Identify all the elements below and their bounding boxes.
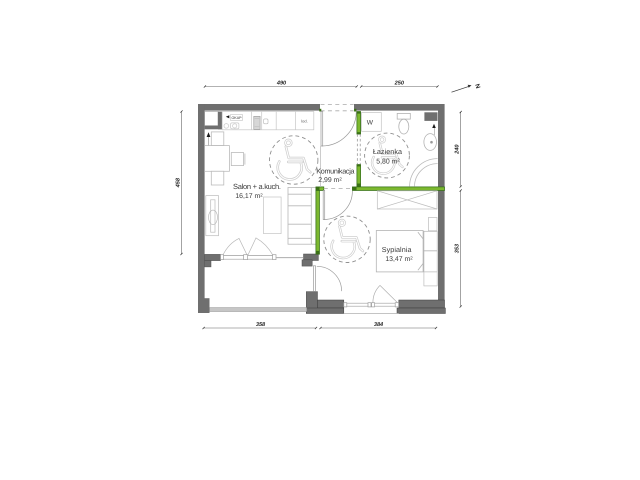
svg-text:384: 384	[374, 322, 384, 328]
svg-text:240: 240	[455, 144, 461, 155]
svg-text:Sypialnia: Sypialnia	[382, 245, 412, 254]
svg-text:Komunikacja: Komunikacja	[316, 166, 354, 175]
svg-text:250: 250	[394, 80, 405, 86]
svg-text:2,99 m2: 2,99 m2	[318, 176, 342, 184]
svg-text:490: 490	[276, 80, 287, 86]
svg-text:W: W	[367, 119, 374, 126]
svg-text:Łazienka: Łazienka	[373, 147, 402, 156]
svg-text:Salon + a.kuch.: Salon + a.kuch.	[233, 182, 281, 191]
svg-text:358: 358	[256, 322, 266, 328]
svg-text:lod.: lod.	[301, 119, 307, 124]
svg-text:16,17 m2: 16,17 m2	[235, 192, 263, 200]
svg-text:458: 458	[175, 177, 181, 188]
svg-text:13,47 m2: 13,47 m2	[385, 255, 413, 263]
svg-text:N: N	[473, 83, 481, 90]
svg-text:353: 353	[455, 243, 461, 253]
svg-text:OKAP: OKAP	[232, 116, 243, 120]
svg-text:5,80 m2: 5,80 m2	[376, 158, 400, 166]
